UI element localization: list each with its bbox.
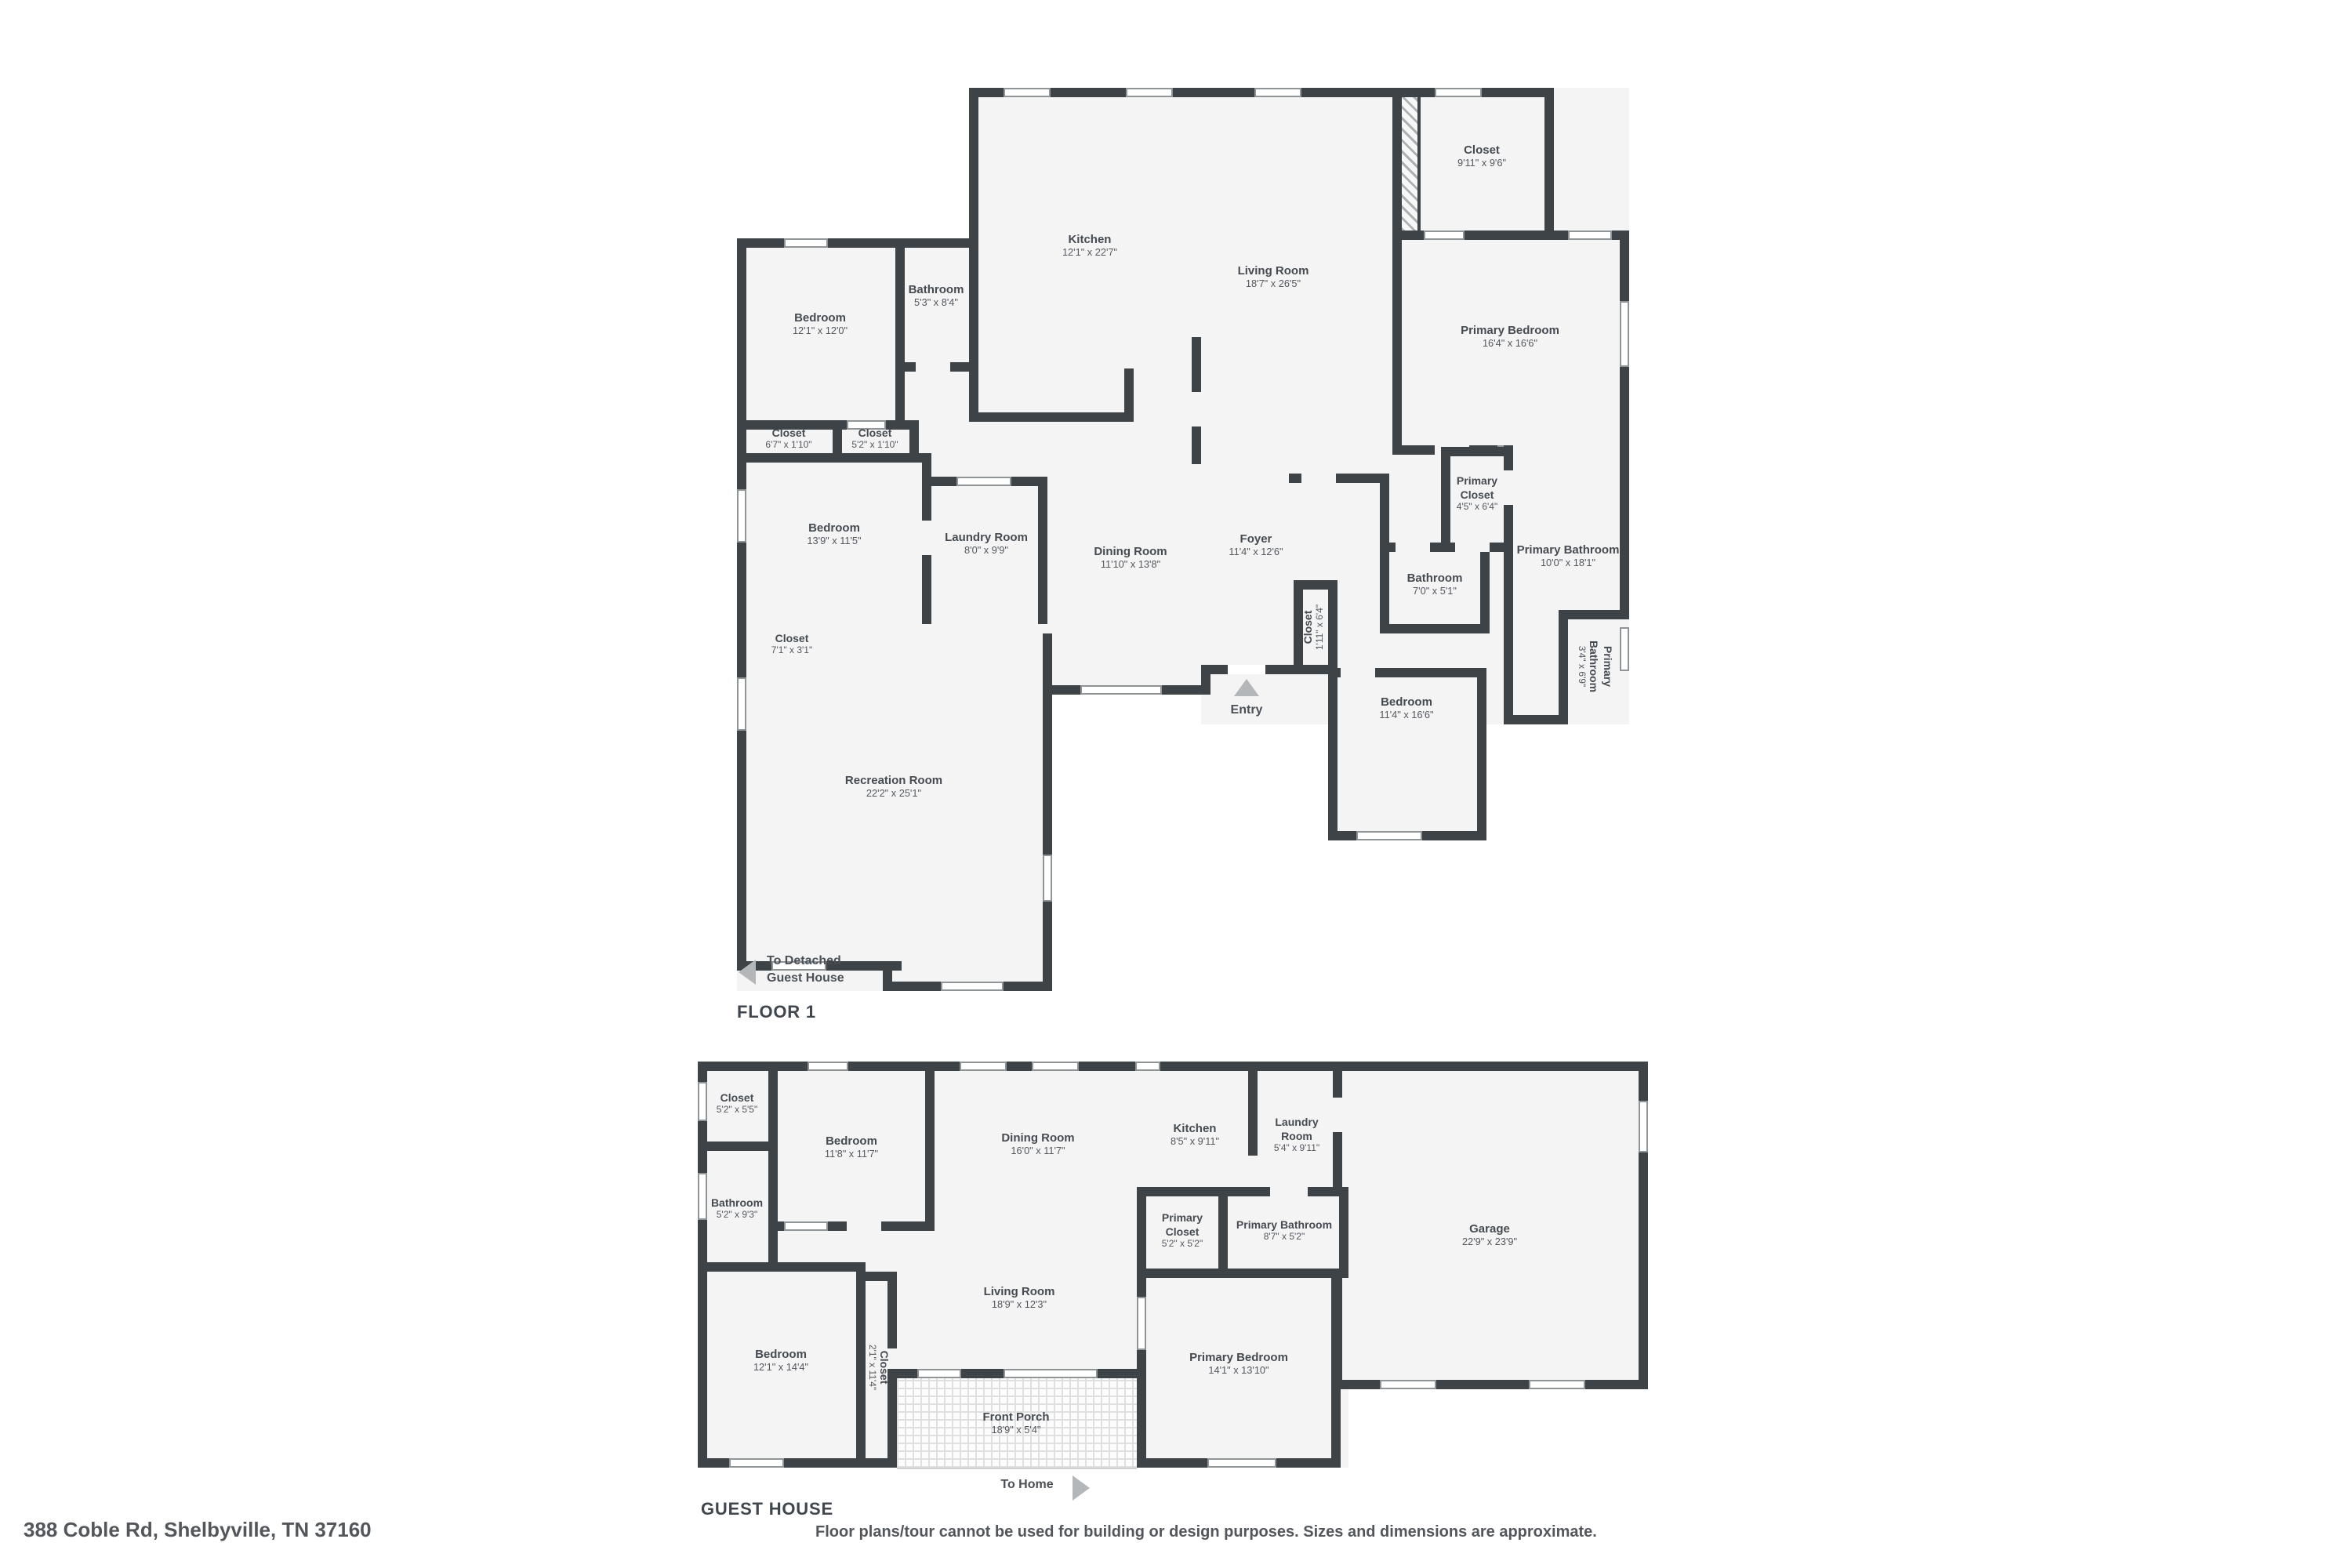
window: [1424, 230, 1465, 240]
room-label-closet: Closet1'11" x 6'4": [1302, 572, 1329, 682]
room-label-dining-room: Dining Room11'10" x 13'8": [1094, 544, 1167, 572]
room-label-primary-bathroom: Primary Bathroom10'0" x 18'1": [1496, 543, 1640, 571]
window: [1004, 88, 1051, 97]
room-label-laundry-room: Laundry Room5'4" x 9'11": [1261, 1116, 1333, 1157]
room-label-closet: Closet5'2" x 1'10": [851, 427, 898, 454]
room-label-primary-bedroom: Primary Bedroom14'1" x 13'10": [1189, 1350, 1288, 1378]
room-label-bedroom: Bedroom12'1" x 12'0": [793, 310, 848, 339]
window: [1356, 831, 1422, 840]
wall: [1544, 88, 1554, 240]
door-opening: [847, 1221, 881, 1231]
wall: [1380, 483, 1389, 552]
room-label-front-porch: Front Porch18'9" x 5'4": [983, 1410, 1050, 1438]
door-opening: [1248, 1156, 1258, 1187]
window: [784, 238, 828, 248]
wall: [1124, 368, 1134, 422]
window: [1435, 88, 1482, 97]
room-label-primary-closet: Primary Closet5'2" x 5'2": [1148, 1212, 1217, 1253]
window: [1004, 1369, 1098, 1378]
door-opening: [1341, 668, 1375, 677]
window: [737, 489, 746, 543]
window: [698, 1082, 707, 1121]
room-label-primary-closet: Primary Closet4'5" x 6'4": [1443, 475, 1512, 516]
guest-house-title: GUEST HOUSE: [701, 1501, 833, 1519]
door-opening: [922, 521, 931, 555]
entry-arrow-icon: [1234, 679, 1259, 696]
door-opening: [1455, 543, 1490, 552]
room-label-closet: Closet9'11" x 9'6": [1457, 143, 1506, 171]
room-label-closet: Closet6'7" x 1'10": [765, 427, 811, 454]
room-label-primary-bedroom: Primary Bedroom16'4" x 16'6": [1461, 323, 1559, 351]
disclaimer-text: Floor plans/tour cannot be used for buil…: [815, 1524, 1597, 1541]
window: [956, 477, 1011, 486]
window: [1568, 230, 1612, 240]
room-label-closet: Closet2'1" x 11'4": [863, 1312, 890, 1422]
wall: [1392, 88, 1402, 455]
room-label-primary-bathroom: Primary Bathroom3'4" x 6'9": [1573, 630, 1613, 702]
window: [729, 1458, 784, 1468]
floor1-title: FLOOR 1: [737, 1004, 816, 1022]
to-home-label: To Home: [1000, 1477, 1053, 1494]
floorplan-page: Kitchen12'1" x 22'7" Living Room18'7" x …: [0, 0, 2352, 1568]
window: [808, 1062, 848, 1071]
window: [1529, 1380, 1585, 1389]
wall: [969, 412, 1134, 422]
room-label-bedroom: Bedroom13'9" x 11'5": [807, 521, 861, 549]
window: [1032, 1062, 1079, 1071]
entry-opening: [1228, 665, 1265, 674]
window: [1126, 88, 1173, 97]
to-home-arrow-icon: [1073, 1475, 1090, 1501]
door-opening: [1396, 543, 1430, 552]
window: [1043, 855, 1052, 902]
room-label-recreation-room: Recreation Room22'2" x 25'1": [845, 773, 942, 801]
room-label-bedroom: Bedroom12'1" x 14'4": [753, 1347, 808, 1375]
room-label-bathroom: Bathroom5'2" x 9'3": [698, 1197, 776, 1224]
window: [960, 1062, 1007, 1071]
room-label-foyer: Foyer11'4" x 12'6": [1229, 532, 1283, 560]
window: [737, 677, 746, 731]
window: [1207, 1458, 1276, 1468]
room-label-dining-room: Dining Room16'0" x 11'7": [1001, 1131, 1074, 1159]
to-guest-house-arrow-icon: [739, 960, 756, 985]
room-label-living-room: Living Room18'7" x 26'5": [1238, 263, 1309, 292]
room-label-bathroom: Bathroom7'0" x 5'1": [1407, 571, 1463, 599]
room-label-bedroom: Bedroom11'4" x 16'6": [1379, 695, 1433, 723]
door-opening: [916, 362, 950, 372]
wall: [1201, 665, 1210, 695]
door-opening: [1192, 392, 1201, 426]
door-opening: [1270, 1187, 1308, 1196]
window: [941, 982, 1004, 991]
window: [1137, 1297, 1146, 1350]
room-label-kitchen: Kitchen12'1" x 22'7": [1062, 232, 1117, 260]
room-label-primary-bathroom: Primary Bathroom8'7" x 5'2": [1221, 1219, 1347, 1246]
room-label-bathroom: Bathroom5'3" x 8'4": [909, 282, 964, 310]
window: [784, 1221, 828, 1231]
window: [1620, 301, 1629, 367]
room-label-bedroom: Bedroom11'8" x 11'7": [825, 1134, 878, 1162]
room-label-laundry-room: Laundry Room8'0" x 9'9": [945, 530, 1028, 558]
room-label-living-room: Living Room18'9" x 12'3": [984, 1284, 1055, 1312]
door-opening: [1301, 474, 1336, 483]
window: [1080, 685, 1162, 695]
room-label-closet: Closet7'1" x 3'1": [771, 633, 812, 659]
exit-note: To DetachedGuest House: [767, 953, 844, 987]
window: [1135, 1062, 1160, 1071]
window: [917, 1369, 961, 1378]
property-address: 388 Coble Rd, Shelbyville, TN 37160: [24, 1518, 372, 1541]
room-label-kitchen: Kitchen8'5" x 9'11": [1171, 1121, 1219, 1149]
window: [1254, 88, 1301, 97]
entry-label: Entry: [1231, 702, 1263, 720]
window: [1639, 1101, 1648, 1152]
room-label-closet: Closet5'2" x 5'5": [717, 1092, 757, 1119]
room-label-garage: Garage22'9" x 23'9": [1462, 1221, 1517, 1250]
hatched-wall: [1402, 97, 1421, 230]
window: [1620, 627, 1629, 671]
door-opening: [1333, 1098, 1342, 1132]
window: [1380, 1380, 1436, 1389]
